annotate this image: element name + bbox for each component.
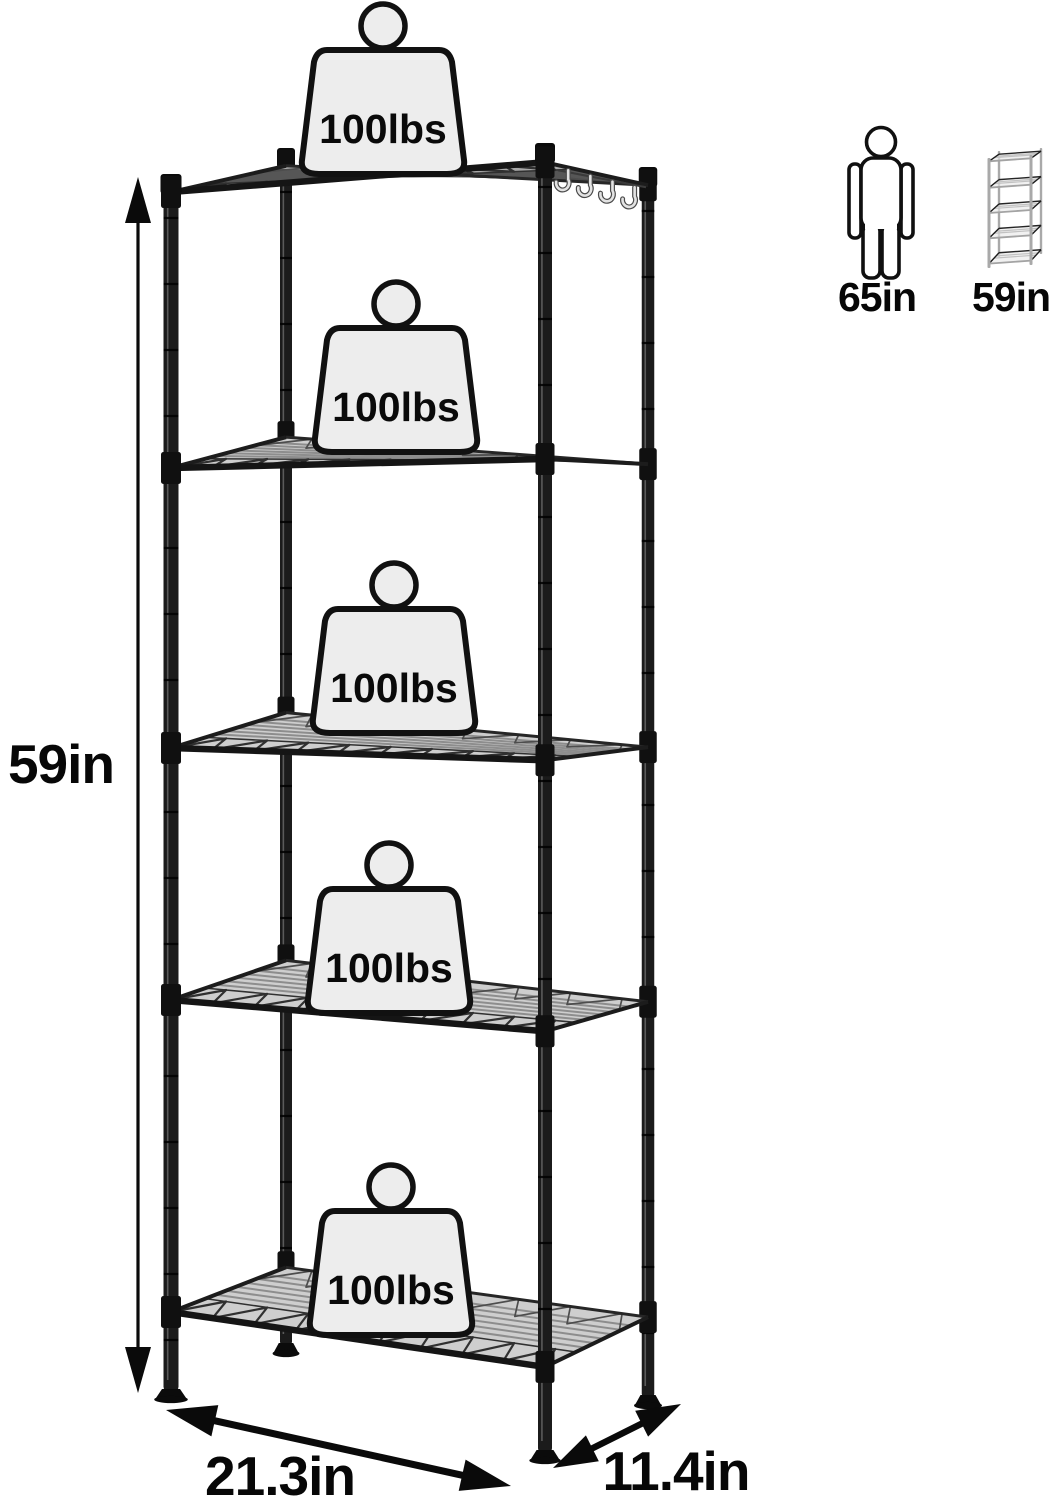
unit-height-label: 59in <box>950 277 1059 318</box>
post <box>164 176 179 1392</box>
post <box>538 145 552 1453</box>
shelf-sleeve <box>161 1296 181 1328</box>
post <box>1030 155 1033 265</box>
shelf <box>989 250 1041 264</box>
shelf-sleeve <box>536 443 555 475</box>
height-arrow <box>125 177 151 1393</box>
arrowhead <box>166 1405 218 1436</box>
weight-ring <box>367 843 411 887</box>
product-dimension-illustration: 100lbs100lbs100lbs100lbs100lbs 59in 21.3… <box>0 0 1059 1500</box>
arrowhead <box>459 1460 511 1491</box>
weight-ring <box>369 1165 413 1209</box>
shelves <box>989 151 1041 263</box>
shelf-sleeve <box>161 984 181 1016</box>
weight-icon: 100lbs <box>302 4 464 174</box>
weight-ring <box>372 563 416 607</box>
width-dimension-label: 21.3in <box>178 1449 382 1500</box>
weight-icon: 100lbs <box>308 843 470 1013</box>
s-hook-icon <box>623 187 636 207</box>
shelf-sleeve <box>536 1351 555 1383</box>
arrowhead <box>125 177 151 223</box>
shelf-right-rail <box>545 459 648 464</box>
shelf-capacity-label: 100lbs <box>332 384 460 430</box>
weight-icon: 100lbs <box>313 563 475 733</box>
person-leg-left <box>863 224 880 278</box>
s-hook-icon <box>600 182 613 202</box>
shelf-sleeve <box>161 732 181 764</box>
depth-dimension-label: 11.4in <box>574 1444 778 1499</box>
person-head <box>867 128 896 157</box>
shelf <box>989 225 1041 238</box>
height-dimension-label: 59in <box>0 737 122 792</box>
shelf-capacity-label: 100lbs <box>330 665 458 711</box>
person-torso <box>861 158 901 230</box>
person-hip-blend <box>865 220 897 229</box>
person-icon <box>849 128 913 279</box>
mini-shelf-icon <box>988 148 1043 268</box>
shelf <box>989 201 1041 213</box>
weight-icon: 100lbs <box>315 282 477 452</box>
arrowhead <box>635 1404 681 1437</box>
shelf <box>989 151 1041 161</box>
illustration-svg: 100lbs100lbs100lbs100lbs100lbs <box>0 0 1059 1500</box>
post <box>988 158 991 268</box>
shelf-sleeve <box>161 452 181 484</box>
weight-ring <box>361 4 405 48</box>
shelf-capacity-label: 100lbs <box>327 1267 455 1313</box>
arrowhead <box>125 1347 151 1393</box>
shelf <box>989 177 1041 188</box>
weight-ring <box>374 282 418 326</box>
shelf-capacity-label: 100lbs <box>319 106 447 152</box>
weight-icon: 100lbs <box>310 1165 472 1335</box>
post <box>642 169 655 1398</box>
shelf-sleeve <box>161 176 181 208</box>
person-leg-right <box>882 224 899 278</box>
shelf-sleeve <box>536 146 555 178</box>
weight-icons: 100lbs100lbs100lbs100lbs100lbs <box>302 4 477 1335</box>
person-height-label: 65in <box>816 277 938 318</box>
shelf-sleeve <box>536 744 555 776</box>
shelf-capacity-label: 100lbs <box>325 945 453 991</box>
shelf-sleeve <box>536 1015 555 1047</box>
